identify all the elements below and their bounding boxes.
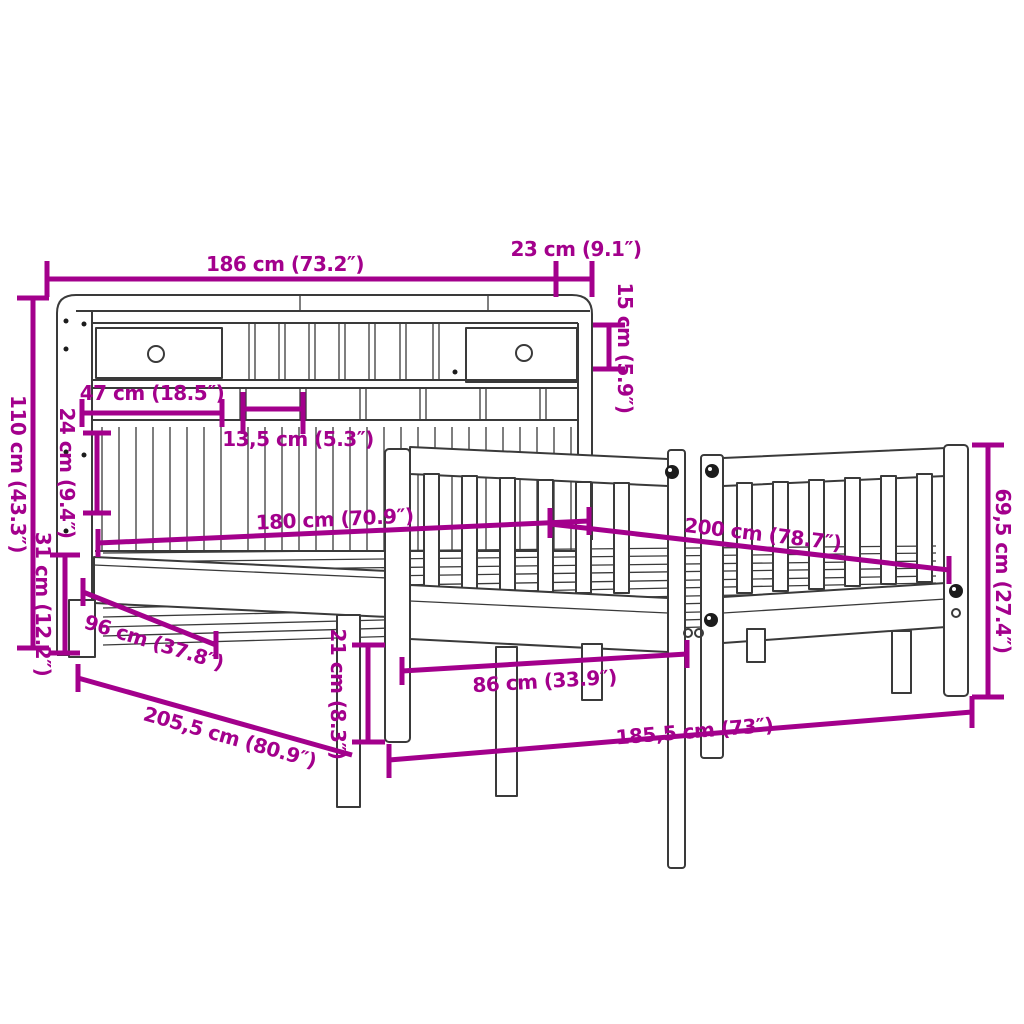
- dim-label-185-5cm: 185,5 cm (73″): [615, 713, 774, 750]
- diagram-canvas: 186 cm (73.2″) 23 cm (9.1″) 15 cm (5.9″)…: [0, 0, 1024, 1024]
- dim-label-110cm: 110 cm (43.3″): [6, 395, 30, 553]
- dim-slot-width: 13,5 cm (5.3″): [222, 392, 374, 451]
- right-drawer: [466, 328, 577, 382]
- front-side-rail: [94, 557, 388, 617]
- cubby-dividers: [249, 323, 439, 380]
- dim-label-47cm: 47 cm (18.5″): [80, 381, 225, 405]
- dim-headboard-width: 186 cm (73.2″): [47, 252, 556, 297]
- slot-dividers: [240, 388, 546, 420]
- dim-label-24cm: 24 cm (9.4″): [55, 407, 79, 538]
- bed-dimension-diagram: 186 cm (73.2″) 23 cm (9.1″) 15 cm (5.9″)…: [0, 0, 1024, 1024]
- bed-leg: [892, 631, 911, 693]
- dim-label-21cm: 21 cm (8.3″): [326, 628, 350, 759]
- mid-post-rear: [668, 450, 685, 868]
- dim-label-23cm: 23 cm (9.1″): [510, 237, 641, 261]
- dim-footboard-height: 69,5 cm (27.4″): [972, 445, 1015, 697]
- dim-label-15cm: 15 cm (5.9″): [613, 282, 637, 413]
- rail-post-left: [385, 449, 410, 742]
- mid-post-front: [701, 455, 723, 758]
- dim-cubby-height: 15 cm (5.9″): [593, 282, 637, 413]
- dim-label-13-5cm: 13,5 cm (5.3″): [222, 427, 374, 451]
- bed-leg: [496, 647, 517, 796]
- dim-total-length: 205,5 cm (80.9″): [78, 664, 352, 773]
- dim-label-31cm: 31 cm (12.2″): [31, 532, 55, 677]
- right-top-rail: [723, 448, 946, 486]
- dim-label-186cm: 186 cm (73.2″): [206, 252, 364, 276]
- bed-leg: [747, 629, 765, 662]
- left-bottom-rail: [410, 585, 668, 652]
- dim-label-69-5cm: 69,5 cm (27.4″): [991, 488, 1015, 653]
- left-drawer: [96, 328, 222, 378]
